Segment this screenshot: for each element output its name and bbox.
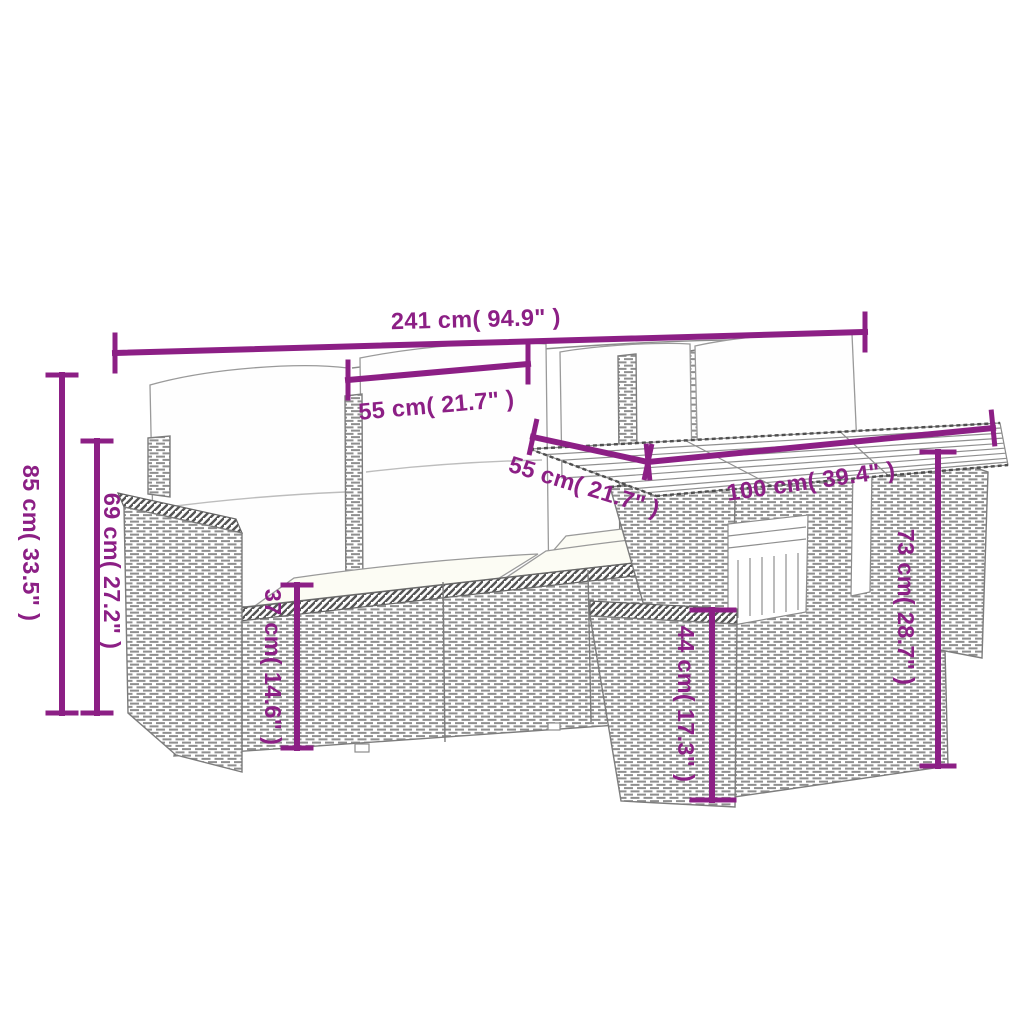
sofa-foot [548,723,560,730]
furniture-illustration: 241 cm( 94.9" ) 55 cm( 21.7" ) 85 cm( 33… [0,0,1024,1024]
seat-height-label: 37 cm( 14.6" ) [260,589,286,745]
backrest-height-label: 69 cm( 27.2" ) [99,493,125,649]
dimension-diagram: 241 cm( 94.9" ) 55 cm( 21.7" ) 85 cm( 33… [0,0,1024,1024]
overall-height-label: 85 cm( 33.5" ) [18,465,44,621]
stool-height-label: 44 cm( 17.3" ) [673,626,699,782]
armrest-face [124,507,242,772]
sofa-foot [355,744,369,752]
dimension-overall-height: 85 cm( 33.5" ) [18,375,76,713]
dimension-backrest-height: 69 cm( 27.2" ) [83,441,125,713]
table-height-label: 73 cm( 28.7" ) [893,529,919,685]
overall-width-label: 241 cm( 94.9" ) [391,304,561,334]
table-side-panel [940,456,988,658]
sofa-back-post-left [148,436,170,497]
